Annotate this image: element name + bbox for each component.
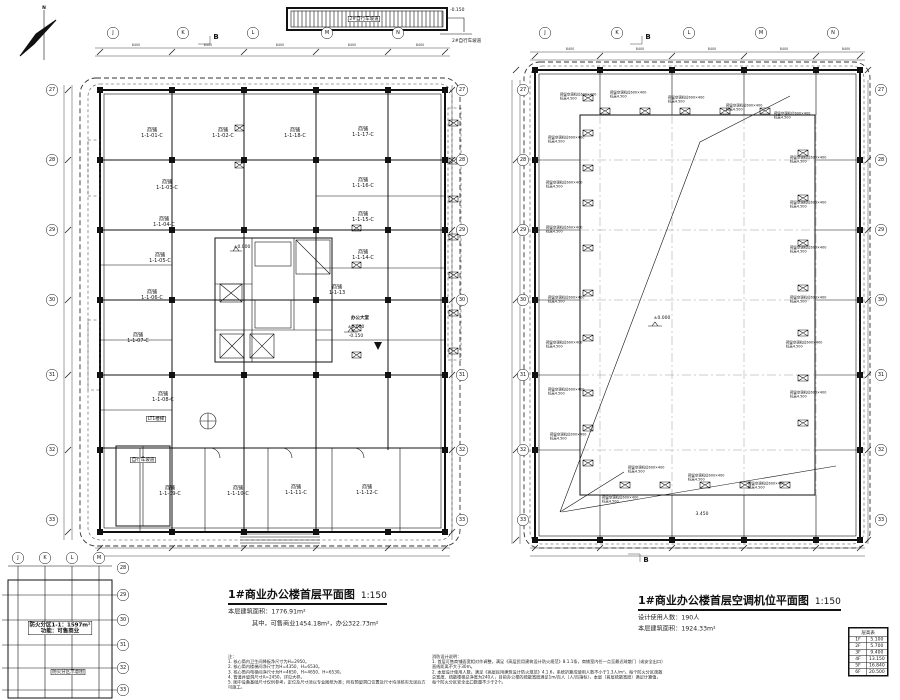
- ac-unit-label: 预留空调机位600×400 标高4.500: [790, 201, 826, 208]
- north-label: N: [42, 6, 46, 11]
- grid-bubble: 29: [875, 224, 887, 236]
- grid-bubble: 29: [46, 224, 58, 236]
- grid-bubble: J: [12, 552, 24, 564]
- grid-bubble: 32: [517, 444, 529, 456]
- general-notes: 注： 1. 核心筒内卫生间降板净尺寸为H=2950。 2. 核心筒内楼梯间净尺寸…: [228, 654, 426, 690]
- grid-bubble: 30: [456, 294, 468, 306]
- grid-bubble: 28: [117, 562, 129, 574]
- room-label: 商铺 1-1-15-C: [352, 212, 374, 223]
- grid-bubble: M: [755, 27, 767, 39]
- dimension-text: 8400: [348, 43, 357, 47]
- grid-bubble: 27: [456, 84, 468, 96]
- grid-bubble: M: [93, 552, 105, 564]
- dimension-text: 8400: [566, 47, 575, 51]
- grid-bubble: 30: [517, 294, 529, 306]
- dimension-text: 8400: [132, 43, 141, 47]
- grid-bubble: 33: [456, 514, 468, 526]
- ac-unit-label: 预留空调机位600×400 标高4.500: [786, 341, 822, 348]
- room-label: 商铺 1-1-10-C: [227, 486, 249, 497]
- ac-unit-label: 预留空调机位600×400 标高4.500: [548, 388, 584, 395]
- ac-unit-label: 预留空调机位600×400 标高4.500: [610, 91, 646, 98]
- room-label: 商铺 1-1-09-C: [159, 486, 181, 497]
- grid-bubble: 33: [117, 684, 129, 696]
- grid-bubble: 31: [875, 369, 887, 381]
- grid-bubble: 28: [875, 154, 887, 166]
- ac-unit-label: 预留空调机位600×400 标高4.500: [774, 112, 810, 119]
- ac-unit-label: 预留空调机位600×400 标高4.500: [790, 246, 826, 253]
- right-plan-center-elevation: ±0.000: [654, 316, 671, 321]
- grid-bubble: 27: [517, 84, 529, 96]
- ac-unit-label: 预留空调机位600×400 标高4.500: [790, 296, 826, 303]
- room-label: 商铺 1-1-11-C: [285, 485, 307, 496]
- left-plan-title: 1#商业办公楼首层平面图1:150: [228, 586, 387, 605]
- grid-bubble: 28: [517, 154, 529, 166]
- grid-bubble: 31: [117, 639, 129, 651]
- cad-detail: [97, 67, 863, 543]
- grid-bubble: 30: [46, 294, 58, 306]
- ac-unit-label: 预留空调机位600×400 标高4.500: [546, 341, 582, 348]
- grid-bubble: 28: [456, 154, 468, 166]
- core-elevation: ±0.000: [234, 245, 251, 250]
- right-plan-scale: 1:150: [815, 597, 841, 607]
- grid-bubble: 30: [117, 614, 129, 626]
- ramp-label: 自行车坡道: [130, 457, 156, 463]
- room-label: 商铺 1-1-16-C: [352, 178, 374, 189]
- north-arrow-icon: [20, 10, 56, 60]
- grid-bubble: 27: [46, 84, 58, 96]
- room-label: 商铺 1-1-03-C: [156, 180, 178, 191]
- room-label: 商铺 1-1-01-C: [141, 128, 163, 139]
- lobby-elevation: ±0.000: [348, 325, 365, 330]
- room-label: 商铺 1-1-08-C: [152, 392, 174, 403]
- grid-bubble: 27: [875, 84, 887, 96]
- left-plan-linework: [64, 36, 461, 556]
- grid-bubble: 32: [456, 444, 468, 456]
- lobby-label: 办公大堂: [351, 314, 369, 321]
- drawing-sheet: N 2#自行车坡道 -0.150 2#自行车坡道 B B B 办公大堂 ±0.0…: [0, 0, 900, 700]
- fire-notes: 消防设计说明： 1. 首层可售商铺面宽相对作调整，满足《高层民用建筑设计防火规范…: [432, 654, 664, 685]
- room-label: 商铺 1-1-14-C: [352, 250, 374, 261]
- grid-bubble: J: [539, 27, 551, 39]
- right-plan-info-1: 设计使用人数：190人: [638, 612, 699, 621]
- dimension-text: 8400: [276, 43, 285, 47]
- left-plan-scale: 1:150: [361, 591, 387, 601]
- ac-unit-label: 预留空调机位600×400 标高4.500: [790, 156, 826, 163]
- grid-bubble: 29: [117, 589, 129, 601]
- ac-unit-label: 预留空调机位600×400 标高4.500: [790, 391, 826, 398]
- grid-bubble: 31: [456, 369, 468, 381]
- ac-unit-label: 预留空调机位600×400 标高4.500: [550, 433, 586, 440]
- ac-unit-label: 预留空调机位600×400 标高4.500: [688, 474, 724, 481]
- section-marker-b: B: [645, 33, 650, 41]
- room-label: 商铺 1-1-06-C: [141, 290, 163, 301]
- dimension-text: 8400: [842, 47, 851, 51]
- grid-bubble: L: [247, 27, 259, 39]
- room-label: 商铺 1-1-05-C: [149, 253, 171, 264]
- dimension-text: 8400: [204, 43, 213, 47]
- grid-bubble: N: [827, 27, 839, 39]
- dimension-text: 8400: [708, 47, 717, 51]
- room-label: 商铺 1-1-18-C: [284, 128, 306, 139]
- grid-bubble: J: [107, 27, 119, 39]
- fire-zone-caption: 防火分区示意图: [51, 669, 86, 675]
- ac-unit-label: 预留空调机位600×400 标高4.500: [546, 181, 582, 188]
- room-label: 商铺 1-1-02-C: [212, 128, 234, 139]
- dimension-text: 8400: [636, 47, 645, 51]
- fire-zone-label: 防火分区1-1：1597m² 功能：可售商业: [28, 621, 92, 635]
- ac-unit-label: 预留空调机位600×400 标高4.500: [602, 496, 638, 503]
- grid-bubble: K: [177, 27, 189, 39]
- ramp-elevation: -0.150: [450, 8, 465, 13]
- grid-bubble: M: [321, 27, 333, 39]
- grid-bubble: L: [66, 552, 78, 564]
- grid-bubble: 32: [875, 444, 887, 456]
- grid-bubble: K: [39, 552, 51, 564]
- right-plan-bottom-dim: 3.450: [696, 512, 709, 517]
- left-plan-title-text: 1#商业办公楼首层平面图: [228, 588, 355, 601]
- right-plan-title: 1#商业办公楼首层空调机位平面图1:150: [638, 592, 841, 611]
- grid-bubble: 33: [46, 514, 58, 526]
- grid-bubble: K: [611, 27, 623, 39]
- grid-bubble: 31: [517, 369, 529, 381]
- ramp-side-label: 2#自行车坡道: [452, 37, 481, 44]
- stair-label: LT1楼梯: [146, 416, 166, 422]
- dimension-text: 8400: [416, 43, 425, 47]
- dimension-text: 8400: [780, 47, 789, 51]
- grid-bubble: 30: [875, 294, 887, 306]
- grid-bubble: 32: [117, 662, 129, 674]
- left-plan-area-2: 其中，可售商业1454.18m²，办公322.73m²: [252, 618, 378, 627]
- section-marker-b: B: [643, 556, 648, 564]
- level-table: 层高表 1F5.100 2F5.700 3F9.400 4F13.150 5F1…: [848, 627, 888, 677]
- room-label: 商铺 1-1-17-C: [352, 127, 374, 138]
- grid-bubble: 33: [517, 514, 529, 526]
- grid-bubble: 33: [875, 514, 887, 526]
- grid-bubble: 29: [517, 224, 529, 236]
- ac-unit-label: 预留空调机位600×400 标高4.500: [726, 104, 762, 111]
- ac-unit-label: 预留空调机位600×400 标高4.500: [748, 482, 784, 489]
- lobby-elevation-2: -0.150: [349, 334, 364, 339]
- room-label: 商铺 1-1-07-C: [127, 333, 149, 344]
- grid-bubble: 29: [456, 224, 468, 236]
- grid-bubble: 31: [46, 369, 58, 381]
- room-label: 商铺 1-1-12-C: [356, 485, 378, 496]
- right-plan-title-text: 1#商业办公楼首层空调机位平面图: [638, 594, 809, 607]
- ac-unit-label: 预留空调机位600×400 标高4.500: [548, 296, 584, 303]
- ac-unit-label: 预留空调机位600×400 标高4.500: [668, 96, 704, 103]
- grid-bubble: L: [683, 27, 695, 39]
- ramp-top-label: 2#自行车坡道: [348, 16, 380, 22]
- section-marker-b: B: [213, 33, 218, 41]
- ac-unit-label: 预留空调机位600×400 标高4.500: [628, 466, 664, 473]
- ac-unit-label: 预留空调机位600×400 标高4.500: [548, 136, 584, 143]
- grid-bubble: 28: [46, 154, 58, 166]
- ac-unit-label: 预留空调机位600×400 标高4.500: [546, 226, 582, 233]
- ac-unit-label: 预留空调机位600×400 标高4.500: [560, 93, 596, 100]
- level-table-title: 层高表: [849, 628, 887, 636]
- room-label: 商铺 1-1-04-C: [153, 217, 175, 228]
- grid-bubble: N: [392, 27, 404, 39]
- left-plan-area-1: 本层建筑面积：1776.91m²: [228, 606, 306, 615]
- grid-bubble: 32: [46, 444, 58, 456]
- right-plan-info-2: 本层建筑面积：1924.33m²: [638, 623, 716, 632]
- room-label: 商铺 1-1-13: [329, 285, 345, 296]
